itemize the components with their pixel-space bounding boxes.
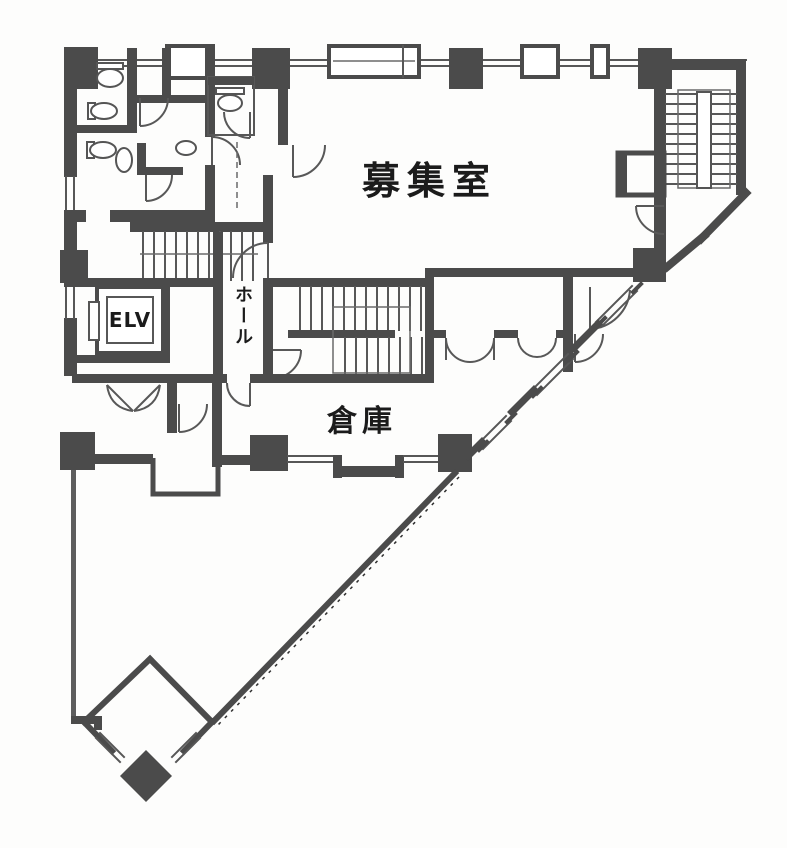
bay-room (153, 458, 218, 494)
door-arc-main-room (293, 145, 325, 177)
room-label-main: 募集室 (362, 150, 497, 205)
pillar (252, 48, 290, 89)
hall-corridor (213, 175, 301, 406)
double-swing-doors (107, 385, 160, 411)
outer-wall-diagonal (667, 236, 704, 267)
top-wall-thick-segment (672, 59, 746, 70)
staircase-upper-right (666, 90, 736, 188)
pillar (638, 48, 672, 89)
column-outline (522, 46, 558, 77)
door-arc-hall-top (233, 243, 268, 278)
outer-wall-left-thin (71, 470, 76, 720)
mid-horizontal-wall (72, 374, 434, 383)
room-label-elevator: ELV (97, 287, 163, 353)
corner-pillar-diamond (120, 750, 172, 802)
door-arc-lower-room (179, 404, 207, 432)
door-arc-under-stair (273, 350, 301, 378)
outer-wall-right (736, 60, 746, 195)
storage-and-lower-rooms (60, 380, 472, 494)
toilet (176, 141, 196, 155)
urinal (116, 148, 132, 172)
corner-bay (71, 470, 212, 802)
floor-plan-page: 募集室 倉庫 ELV ホール (0, 0, 787, 848)
pillar (60, 250, 88, 283)
double-doors-closet-1 (446, 338, 494, 362)
pillar (250, 435, 288, 471)
column-outline (592, 46, 608, 77)
sink (97, 69, 123, 87)
double-doors-closet-2 (518, 338, 556, 357)
stair-wall (654, 195, 666, 250)
toilet (91, 103, 117, 119)
stair-stringer (697, 92, 711, 188)
pillar (449, 48, 483, 89)
diagonal-window (532, 352, 577, 396)
staircase-central (288, 287, 422, 374)
toilet (90, 142, 116, 158)
staircase-upper-left (130, 222, 273, 287)
duct-shaft-wall (618, 153, 627, 195)
lower-diagonal-wall (214, 473, 459, 725)
room-label-storage: 倉庫 (327, 396, 397, 440)
diagonal-window (596, 284, 641, 327)
door-arc-hall-bottom (227, 383, 250, 406)
room-label-hall: ホール (229, 285, 255, 348)
stair-landing-wall (288, 330, 395, 338)
right-wing (618, 60, 746, 282)
outer-wall-diagonal (701, 193, 746, 239)
diagonal-facade (468, 284, 641, 456)
pillar (60, 432, 95, 470)
sink (218, 95, 242, 111)
pillar (64, 47, 98, 89)
